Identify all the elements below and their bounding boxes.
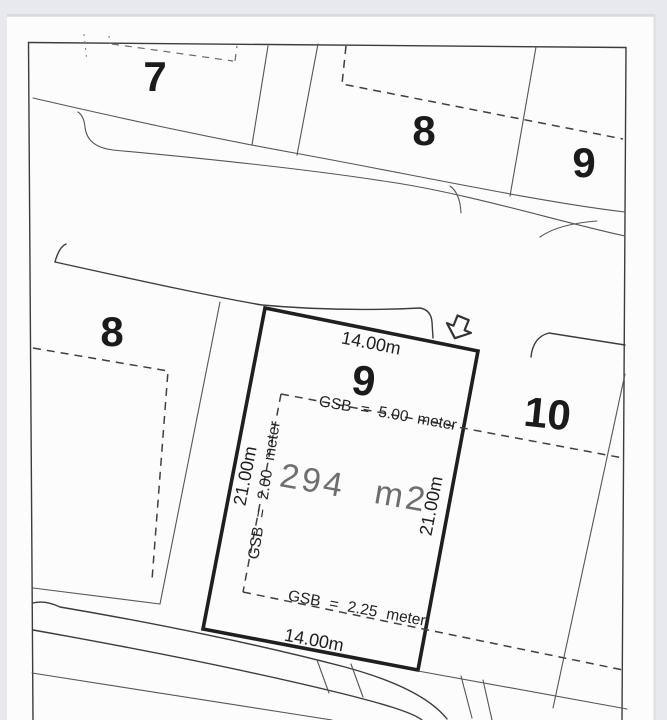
plot7-label: 7 [143,53,166,100]
site-plan-canvas: 7 8 9 8 14.00m 9 GSB = 5.00 meter 294 m2… [0,0,667,720]
plot8-mid-label: 8 [100,308,123,355]
scanned-site-plan-page: 7 8 9 8 14.00m 9 GSB = 5.00 meter 294 m2… [0,0,667,720]
plot10-label: 10 [522,388,573,440]
plot9-top-label: 9 [572,139,595,186]
plot8-top-label: 8 [412,107,435,154]
